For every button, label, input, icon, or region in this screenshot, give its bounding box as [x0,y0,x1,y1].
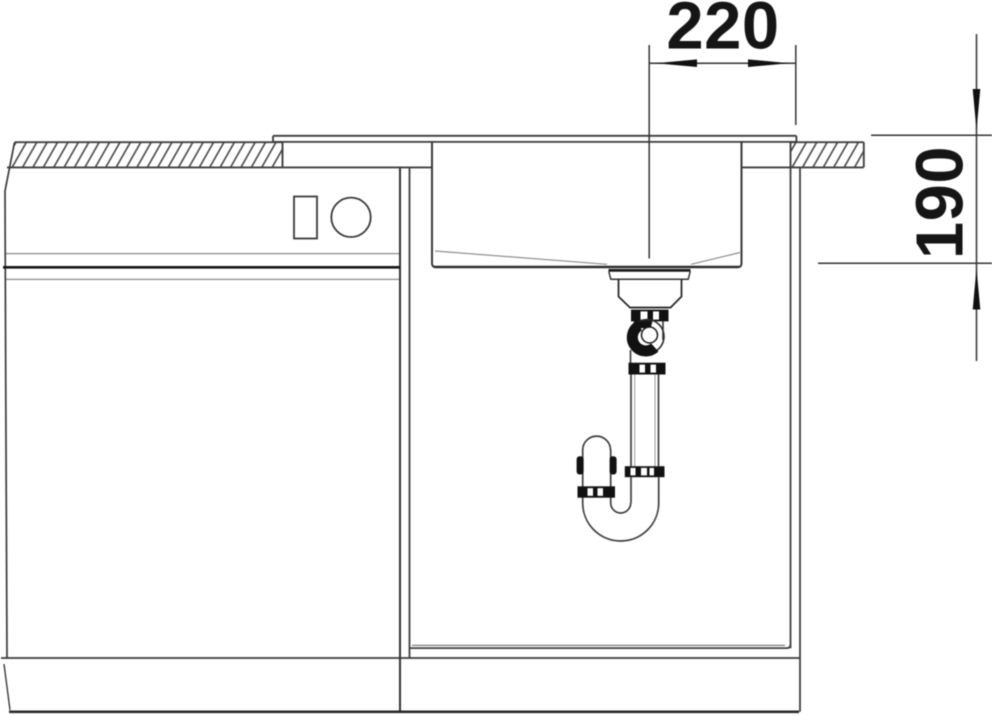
svg-text:220: 220 [666,0,779,64]
svg-text:190: 190 [903,146,978,259]
